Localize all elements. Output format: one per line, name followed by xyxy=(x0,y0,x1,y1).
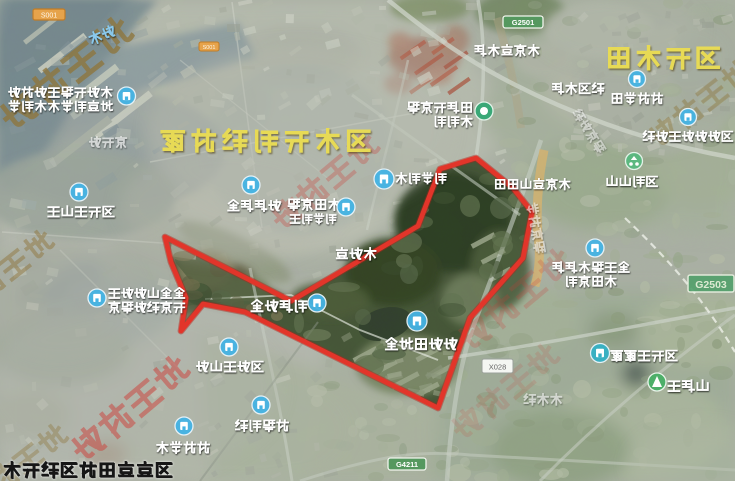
svg-text:G2503: G2503 xyxy=(695,279,727,291)
svg-text:G2501: G2501 xyxy=(512,18,535,27)
svg-text:S001: S001 xyxy=(41,13,57,20)
svg-text:X028: X028 xyxy=(489,363,507,372)
svg-text:S001: S001 xyxy=(203,45,216,51)
svg-text:G4211: G4211 xyxy=(396,460,418,469)
